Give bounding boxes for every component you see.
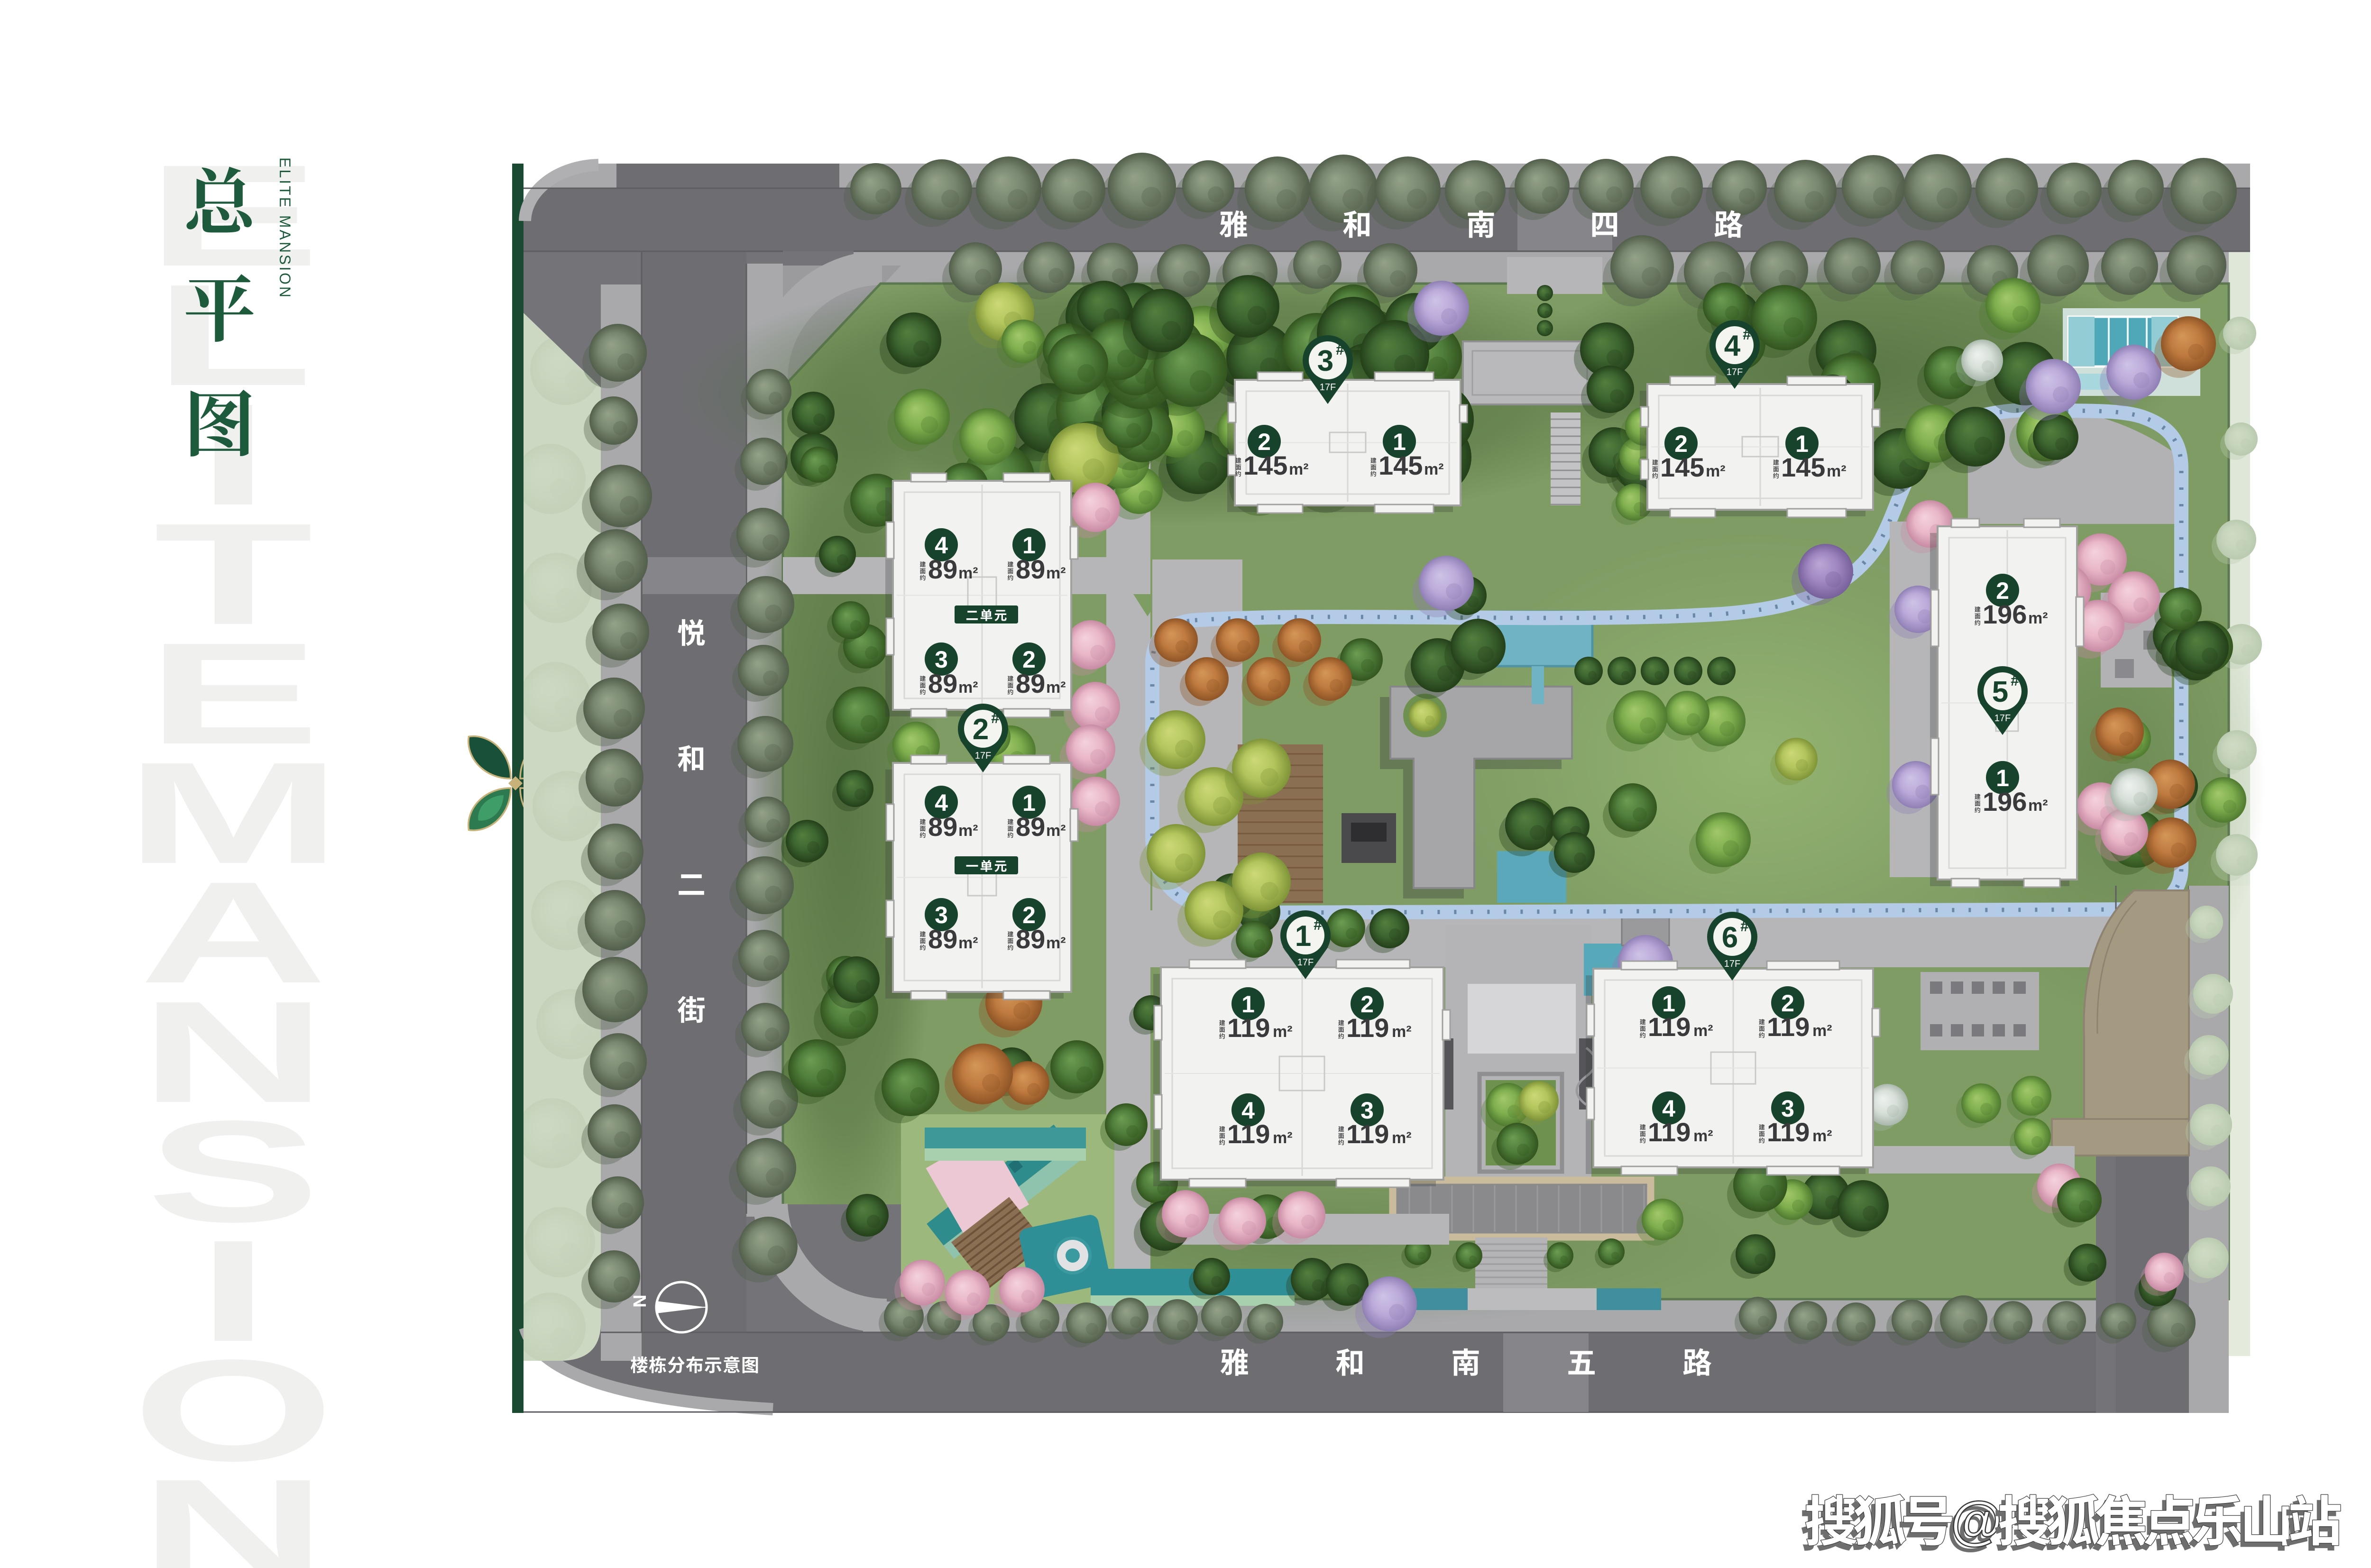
svg-text:1: 1 xyxy=(1295,920,1311,953)
svg-text:119: 119 xyxy=(1346,1013,1389,1043)
svg-text:ELITE MANSION: ELITE MANSION xyxy=(276,157,294,299)
svg-text:@: @ xyxy=(1950,1491,2002,1550)
svg-text:m²: m² xyxy=(2028,609,2048,627)
svg-text:89: 89 xyxy=(1016,924,1045,954)
svg-text:m²: m² xyxy=(1812,1127,1832,1145)
svg-text:m²: m² xyxy=(1046,934,1066,952)
svg-text:119: 119 xyxy=(1227,1013,1270,1043)
svg-text:5: 5 xyxy=(1992,676,2008,708)
svg-text:#: # xyxy=(1740,917,1749,935)
svg-text:89: 89 xyxy=(928,812,957,842)
svg-text:119: 119 xyxy=(1227,1119,1270,1149)
svg-text:89: 89 xyxy=(1016,669,1045,698)
svg-text:m²: m² xyxy=(1706,462,1726,480)
svg-text:#: # xyxy=(1336,341,1344,358)
svg-text:4: 4 xyxy=(1724,330,1741,362)
svg-text:17F: 17F xyxy=(1727,367,1743,377)
svg-text:m²: m² xyxy=(958,934,978,952)
svg-text:17F: 17F xyxy=(1724,959,1740,969)
svg-text:m²: m² xyxy=(2028,797,2048,815)
svg-text:3: 3 xyxy=(1317,345,1333,377)
svg-text:89: 89 xyxy=(928,669,957,698)
svg-text:145: 145 xyxy=(1378,450,1423,480)
svg-text:m²: m² xyxy=(1827,462,1847,480)
svg-text:m²: m² xyxy=(1392,1023,1412,1041)
svg-text:17F: 17F xyxy=(975,751,991,761)
svg-text:#: # xyxy=(991,709,1000,726)
svg-text:m²: m² xyxy=(1392,1129,1412,1147)
svg-text:#: # xyxy=(1314,916,1322,933)
svg-text:N: N xyxy=(630,1294,650,1307)
svg-text:#: # xyxy=(2011,672,2019,689)
svg-text:196: 196 xyxy=(1983,787,2027,816)
svg-text:119: 119 xyxy=(1648,1117,1691,1147)
svg-text:119: 119 xyxy=(1767,1117,1810,1147)
svg-text:m²: m² xyxy=(1812,1022,1832,1040)
svg-text:89: 89 xyxy=(1016,812,1045,842)
svg-text:145: 145 xyxy=(1660,452,1704,482)
svg-text:17F: 17F xyxy=(1297,957,1314,968)
svg-text:m²: m² xyxy=(1046,822,1066,840)
svg-text:m²: m² xyxy=(1693,1127,1713,1145)
svg-text:119: 119 xyxy=(1767,1012,1810,1042)
svg-text:N: N xyxy=(139,1449,327,1568)
svg-text:m²: m² xyxy=(1424,460,1444,478)
svg-text:17F: 17F xyxy=(1320,382,1336,393)
svg-text:17F: 17F xyxy=(1994,713,2011,724)
svg-text:m²: m² xyxy=(1273,1129,1293,1147)
svg-text:#: # xyxy=(1743,326,1751,343)
svg-text:m²: m² xyxy=(1693,1022,1713,1040)
svg-text:89: 89 xyxy=(1016,554,1045,584)
svg-text:119: 119 xyxy=(1648,1012,1691,1042)
svg-text:2: 2 xyxy=(973,713,989,746)
svg-text:145: 145 xyxy=(1243,450,1287,480)
svg-text:m²: m² xyxy=(958,564,978,582)
svg-text:m²: m² xyxy=(1046,679,1066,697)
svg-text:196: 196 xyxy=(1983,599,2027,629)
svg-text:89: 89 xyxy=(928,924,957,954)
svg-text:m²: m² xyxy=(958,679,978,697)
svg-text:m²: m² xyxy=(958,822,978,840)
svg-text:119: 119 xyxy=(1346,1119,1389,1149)
svg-text:145: 145 xyxy=(1781,452,1825,482)
svg-text:m²: m² xyxy=(1289,460,1309,478)
svg-text:89: 89 xyxy=(928,554,957,584)
svg-text:m²: m² xyxy=(1273,1023,1293,1041)
svg-text:m²: m² xyxy=(1046,564,1066,582)
svg-text:6: 6 xyxy=(1722,921,1738,954)
